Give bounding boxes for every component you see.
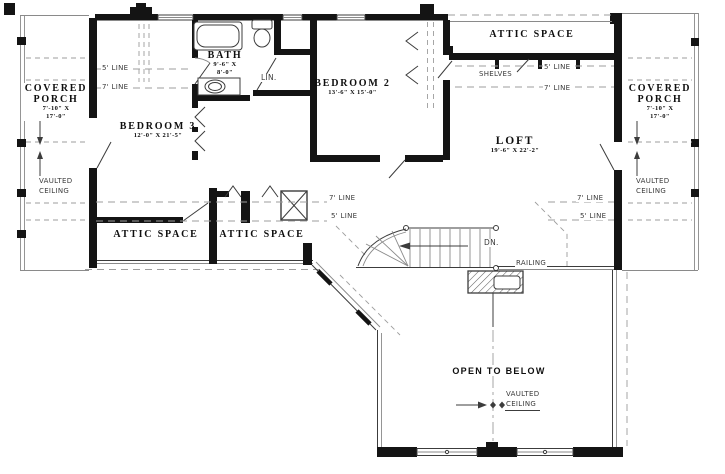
room-name: BATH [197,50,253,61]
room-label-attic-top: ATTIC SPACE [482,29,582,40]
window [283,15,302,20]
room-dims: 7'-10" X [24,105,88,113]
room-dims: 17'-0" [24,113,88,121]
line7-label-bedroom3: 7' LINE [101,83,129,91]
door-leaf-left-porch [97,142,111,168]
floorplan-page: COVERED PORCH 7'-10" X 17'-0" COVERED PO… [0,0,725,474]
corner-post [4,3,15,15]
door-leaf-bedroom2 [389,160,405,178]
line5-label-bedroom3: 5' LINE [101,64,129,72]
down-arrow [399,243,468,250]
vaulted-text: VAULTED [636,177,669,187]
vaulted-ceiling-label-bottom: VAULTED CEILING [506,390,539,409]
room-dims: 17'-0" [628,113,692,121]
staircase [356,226,499,271]
bedroom2-walls [310,18,453,178]
attic-left-walls [97,186,307,264]
line5-label-loft-right: 5' LINE [579,212,607,220]
porch-left [4,3,89,271]
roof-post [420,4,434,20]
room-name: PORCH [628,94,692,105]
vaulted-ceiling-label-right: VAULTED CEILING [636,177,669,196]
room-label-covered-porch-right: COVERED PORCH 7'-10" X 17'-0" [628,83,692,121]
bathtub [194,22,242,50]
door-leaf-right-porch [600,144,614,170]
room-name: COVERED [24,83,88,94]
shelves-label: SHELVES [478,70,513,78]
shelves-leader [517,59,529,72]
porch-right [622,13,699,271]
window [158,15,193,20]
toilet [252,20,272,47]
line5-label-bottom-left: 5' LINE [330,212,358,220]
room-name: COVERED [628,83,692,94]
room-label-loft: LOFT 19'-6" X 22'-2" [463,136,567,155]
room-name: ATTIC SPACE [212,229,312,240]
door-leaf-attic-access [438,61,452,78]
room-name: ATTIC SPACE [482,29,582,40]
room-name: LOFT [463,136,567,147]
room-name: PORCH [24,94,88,105]
room-dims: 12'-0" X 21'-5" [106,132,210,140]
room-label-covered-porch-left: COVERED PORCH 7'-10" X 17'-0" [24,83,88,121]
vanity-sink [198,78,240,95]
window [417,449,477,456]
line5-label-loft-top: 5' LINE [543,63,571,71]
vaulted-text: VAULTED [39,177,72,187]
linen-label: LIN. [260,74,278,82]
room-name: BEDROOM 2 [300,78,405,89]
window [517,449,573,456]
porch-right-dimension-arrow [634,120,640,176]
open-to-below-label: OPEN TO BELOW [444,366,554,376]
room-name: BEDROOM 3 [106,121,210,132]
room-dims: 9'-6" X [197,61,253,69]
line7-label-loft-top: 7' LINE [543,84,571,92]
line7-label-loft-right: 7' LINE [576,194,604,202]
room-label-attic-left2: ATTIC SPACE [212,229,312,240]
ceiling-text: CEILING [39,187,72,197]
room-name: ATTIC SPACE [106,229,206,240]
room-label-bath: BATH 9'-6" X 8'-0" [197,50,253,77]
down-label: DN. [483,239,500,247]
window [337,15,365,20]
room-dims: 19'-6" X 22'-2" [463,147,567,155]
attic-top-walls [449,53,614,72]
ceiling-text: CEILING [506,400,539,410]
chimney-flue [281,191,307,220]
vaulted-text: VAULTED [506,390,539,400]
fireplace-chase [468,271,523,293]
room-label-bedroom2: BEDROOM 2 13'-6" X 15'-0" [300,78,405,97]
room-label-attic-left1: ATTIC SPACE [106,229,206,240]
railing-label: RAILING [515,259,547,267]
room-label-bedroom3: BEDROOM 3 12'-0" X 21'-5" [106,121,210,140]
room-dims: 7'-10" X [628,105,692,113]
porch-left-dimension-arrow [37,120,43,176]
line7-label-bottom-left: 7' LINE [328,194,356,202]
ceiling-text: CEILING [636,187,669,197]
room-dims: 8'-0" [197,69,253,77]
door-leaf-attic1 [183,203,208,221]
vaulted-ceiling-label-left: VAULTED CEILING [39,177,72,196]
room-dims: 13'-6" X 15'-0" [300,89,405,97]
